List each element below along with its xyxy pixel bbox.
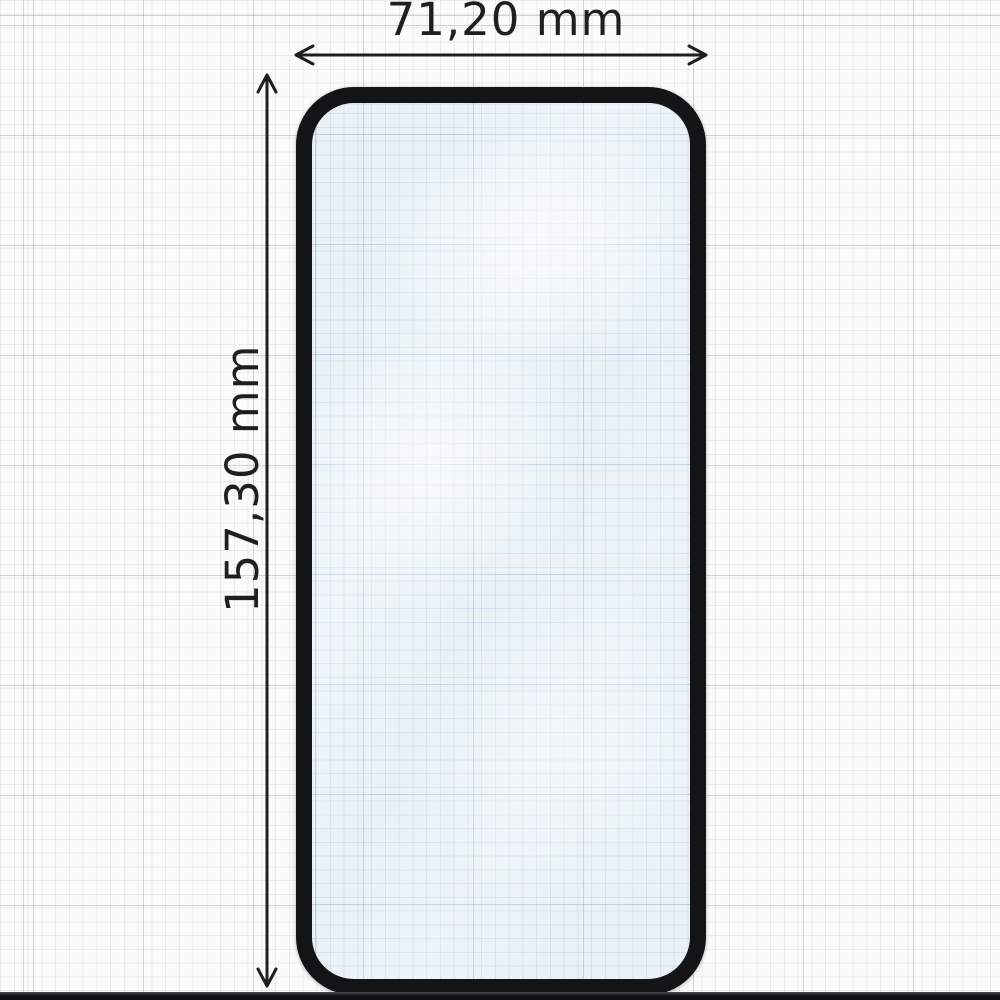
glass-reflection <box>312 103 690 979</box>
height-dimension-label: 157,30 mm <box>220 383 266 613</box>
product-dimension-diagram: 71,20 mm 157,30 mm <box>0 0 1000 1000</box>
photo-edge-strip <box>0 992 1000 1000</box>
screen-protector <box>296 87 706 995</box>
width-dimension-label: 71,20 mm <box>350 0 662 42</box>
